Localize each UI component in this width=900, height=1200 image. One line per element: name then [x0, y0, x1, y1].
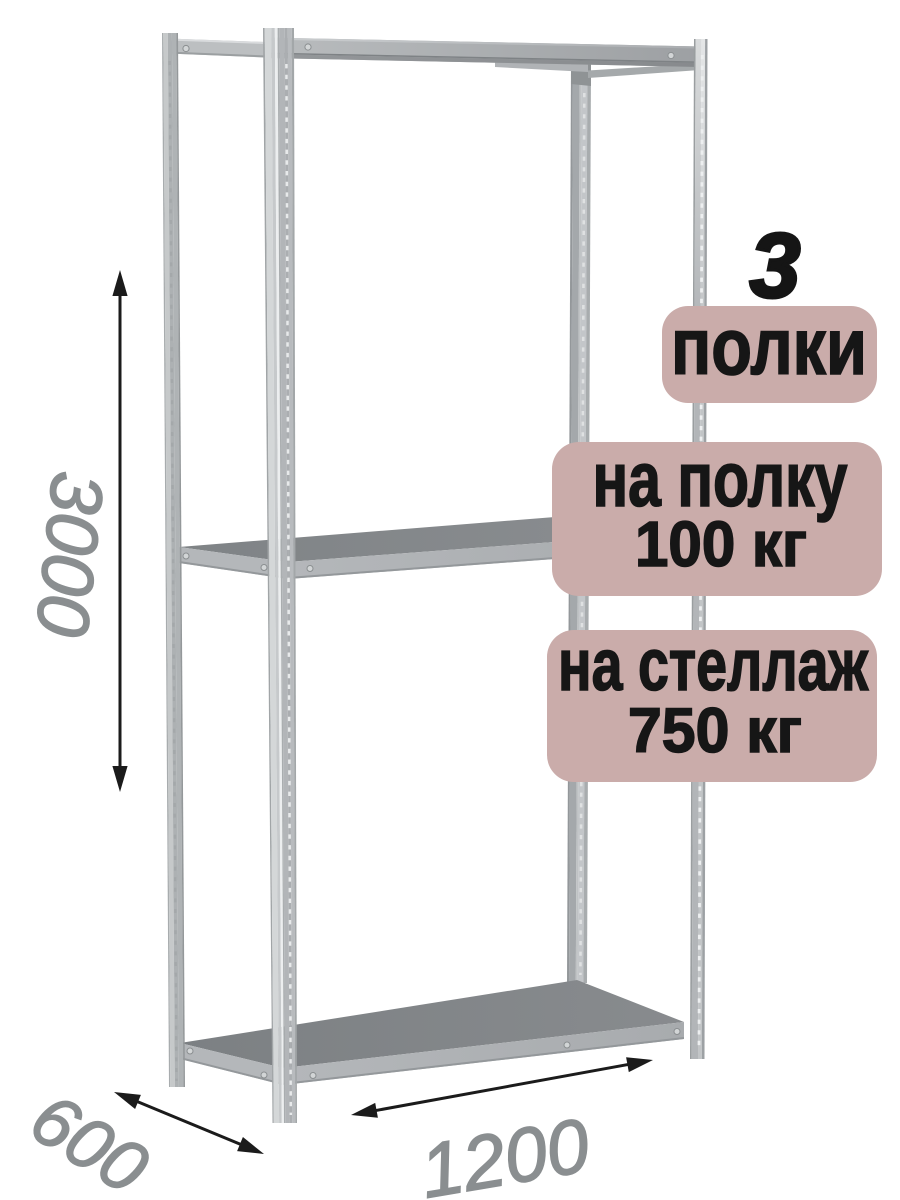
svg-text:100 кг: 100 кг: [635, 508, 807, 580]
svg-text:полки: полки: [671, 302, 867, 391]
svg-text:на стеллаж: на стеллаж: [558, 625, 869, 706]
svg-text:750 кг: 750 кг: [628, 696, 802, 766]
svg-text:3000: 3000: [20, 468, 120, 640]
